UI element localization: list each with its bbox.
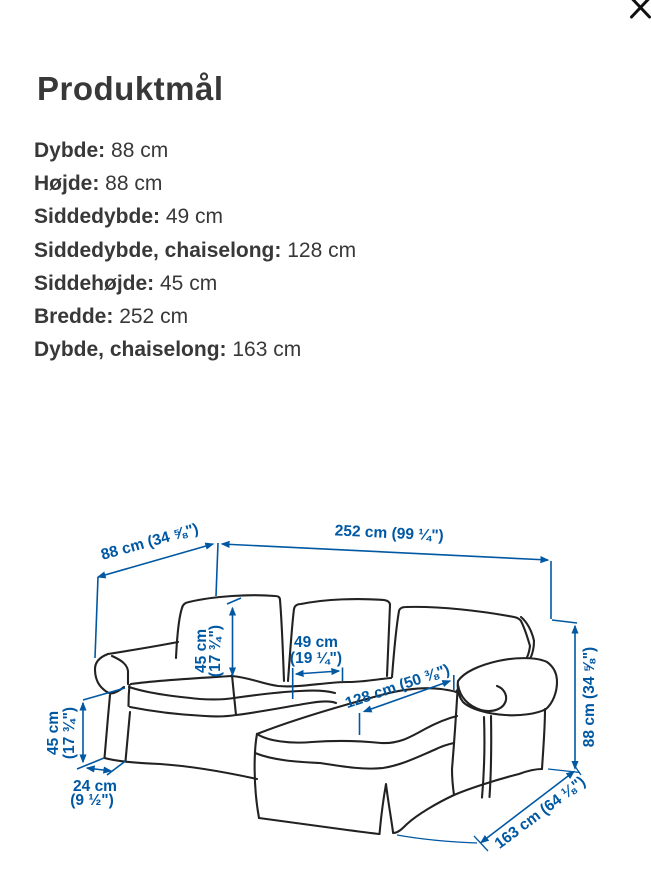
svg-text:(19 ¼"): (19 ¼") [290,650,342,667]
svg-text:(9 ½"): (9 ½") [70,792,114,809]
svg-text:88 cm (34 ⅝"): 88 cm (34 ⅝") [99,521,200,564]
svg-text:(17 ¾"): (17 ¾") [207,625,224,677]
svg-text:(17 ¾"): (17 ¾") [61,707,78,759]
svg-text:49 cm: 49 cm [294,634,338,651]
svg-text:252 cm (99 ¼"): 252 cm (99 ¼") [334,522,444,544]
svg-text:163 cm (64 ⅛"): 163 cm (64 ⅛") [492,773,589,852]
svg-text:88 cm (34 ⅝"): 88 cm (34 ⅝") [581,647,598,747]
svg-text:45 cm: 45 cm [45,711,62,755]
